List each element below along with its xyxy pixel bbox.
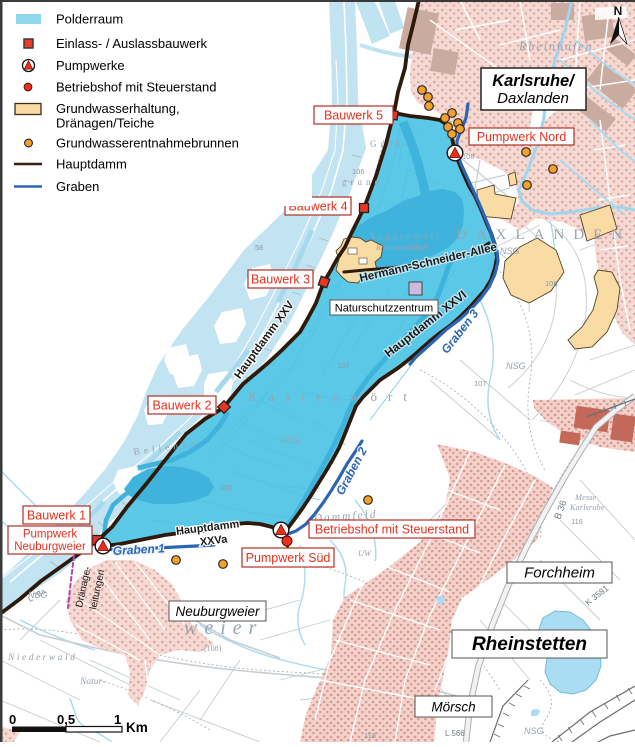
- svg-text:NSG: NSG: [28, 590, 48, 600]
- svg-text:58: 58: [255, 243, 263, 252]
- svg-text:Karlsruhe: Karlsruhe: [569, 502, 605, 512]
- svg-text:108: 108: [219, 483, 232, 492]
- svg-text:116: 116: [571, 517, 583, 526]
- svg-text:Grundwasserentnahmebrunnen: Grundwasserentnahmebrunnen: [56, 136, 239, 151]
- svg-text:106: 106: [545, 279, 558, 288]
- svg-text:Messe: Messe: [574, 492, 596, 502]
- svg-text:Polderraum: Polderraum: [56, 12, 123, 27]
- svg-text:0: 0: [9, 712, 16, 727]
- svg-text:Groß-: Groß-: [370, 139, 412, 149]
- svg-text:Rheinstrandbad: Rheinstrandbad: [375, 243, 428, 252]
- svg-text:DAXLANDEN: DAXLANDEN: [456, 227, 631, 243]
- svg-text:Kastenwört: Kastenwört: [248, 389, 418, 404]
- svg-text:Graben 1: Graben 1: [112, 541, 165, 558]
- svg-text:Rheinstetten: Rheinstetten: [472, 634, 587, 655]
- svg-text:Karlsruhe/: Karlsruhe/: [492, 72, 576, 90]
- svg-text:107: 107: [474, 379, 487, 388]
- svg-text:N: N: [614, 4, 623, 18]
- svg-text:1: 1: [114, 712, 121, 727]
- svg-text:Einlass- / Auslassbauwerk: Einlass- / Auslassbauwerk: [56, 36, 208, 51]
- svg-text:Mörsch: Mörsch: [431, 700, 475, 715]
- svg-text:0,5: 0,5: [57, 712, 75, 727]
- svg-text:Neuburgweier: Neuburgweier: [14, 541, 86, 553]
- svg-text:118: 118: [364, 731, 376, 740]
- svg-text:Daxlanden: Daxlanden: [497, 90, 569, 107]
- svg-text:Rheinhafen: Rheinhafen: [518, 39, 594, 53]
- svg-text:Naturschutzzentrum: Naturschutzzentrum: [335, 303, 433, 315]
- svg-text:(108): (108): [204, 644, 222, 653]
- svg-text:NSG: NSG: [506, 361, 526, 371]
- svg-text:L 566: L 566: [445, 729, 465, 738]
- svg-text:106: 106: [352, 167, 365, 176]
- svg-text:Bauwerk 1: Bauwerk 1: [27, 509, 86, 523]
- svg-text:Pumpwerk Nord: Pumpwerk Nord: [477, 130, 567, 144]
- svg-text:Rappenwört: Rappenwört: [370, 231, 442, 241]
- svg-text:NSG: NSG: [524, 726, 544, 736]
- svg-text:Km: Km: [126, 720, 148, 735]
- svg-text:Betriebshof mit Steuerstand: Betriebshof mit Steuerstand: [56, 80, 216, 95]
- svg-text:NSG: NSG: [500, 246, 520, 256]
- svg-text:Forchheim: Forchheim: [524, 565, 595, 582]
- svg-text:107: 107: [337, 361, 350, 370]
- svg-text:Pumpwerk: Pumpwerk: [23, 529, 78, 541]
- svg-text:Grundwasserhaltung,: Grundwasserhaltung,: [56, 101, 180, 116]
- svg-text:108: 108: [462, 152, 475, 161]
- svg-text:Pumpwerk Süd: Pumpwerk Süd: [246, 551, 331, 565]
- svg-text:Hauptdamm: Hauptdamm: [56, 157, 127, 172]
- svg-text:Natur-: Natur-: [79, 677, 105, 687]
- svg-text:Bauwerk 2: Bauwerk 2: [152, 399, 211, 413]
- svg-text:Neuburgweier: Neuburgweier: [175, 604, 260, 619]
- svg-text:Niederwald: Niederwald: [7, 653, 77, 663]
- svg-text:UW: UW: [358, 548, 372, 558]
- svg-text:Betriebshof mit Steuerstand: Betriebshof mit Steuerstand: [315, 523, 469, 537]
- svg-text:Bauwerk 3: Bauwerk 3: [251, 273, 310, 287]
- svg-text:Dränagen/Teiche: Dränagen/Teiche: [56, 116, 154, 131]
- svg-text:grund: grund: [342, 177, 383, 187]
- svg-text:Bauwerk 5: Bauwerk 5: [324, 109, 383, 123]
- svg-text:Pumpwerke: Pumpwerke: [56, 58, 125, 73]
- svg-text:NSG: NSG: [280, 435, 300, 445]
- svg-text:Graben: Graben: [56, 179, 99, 194]
